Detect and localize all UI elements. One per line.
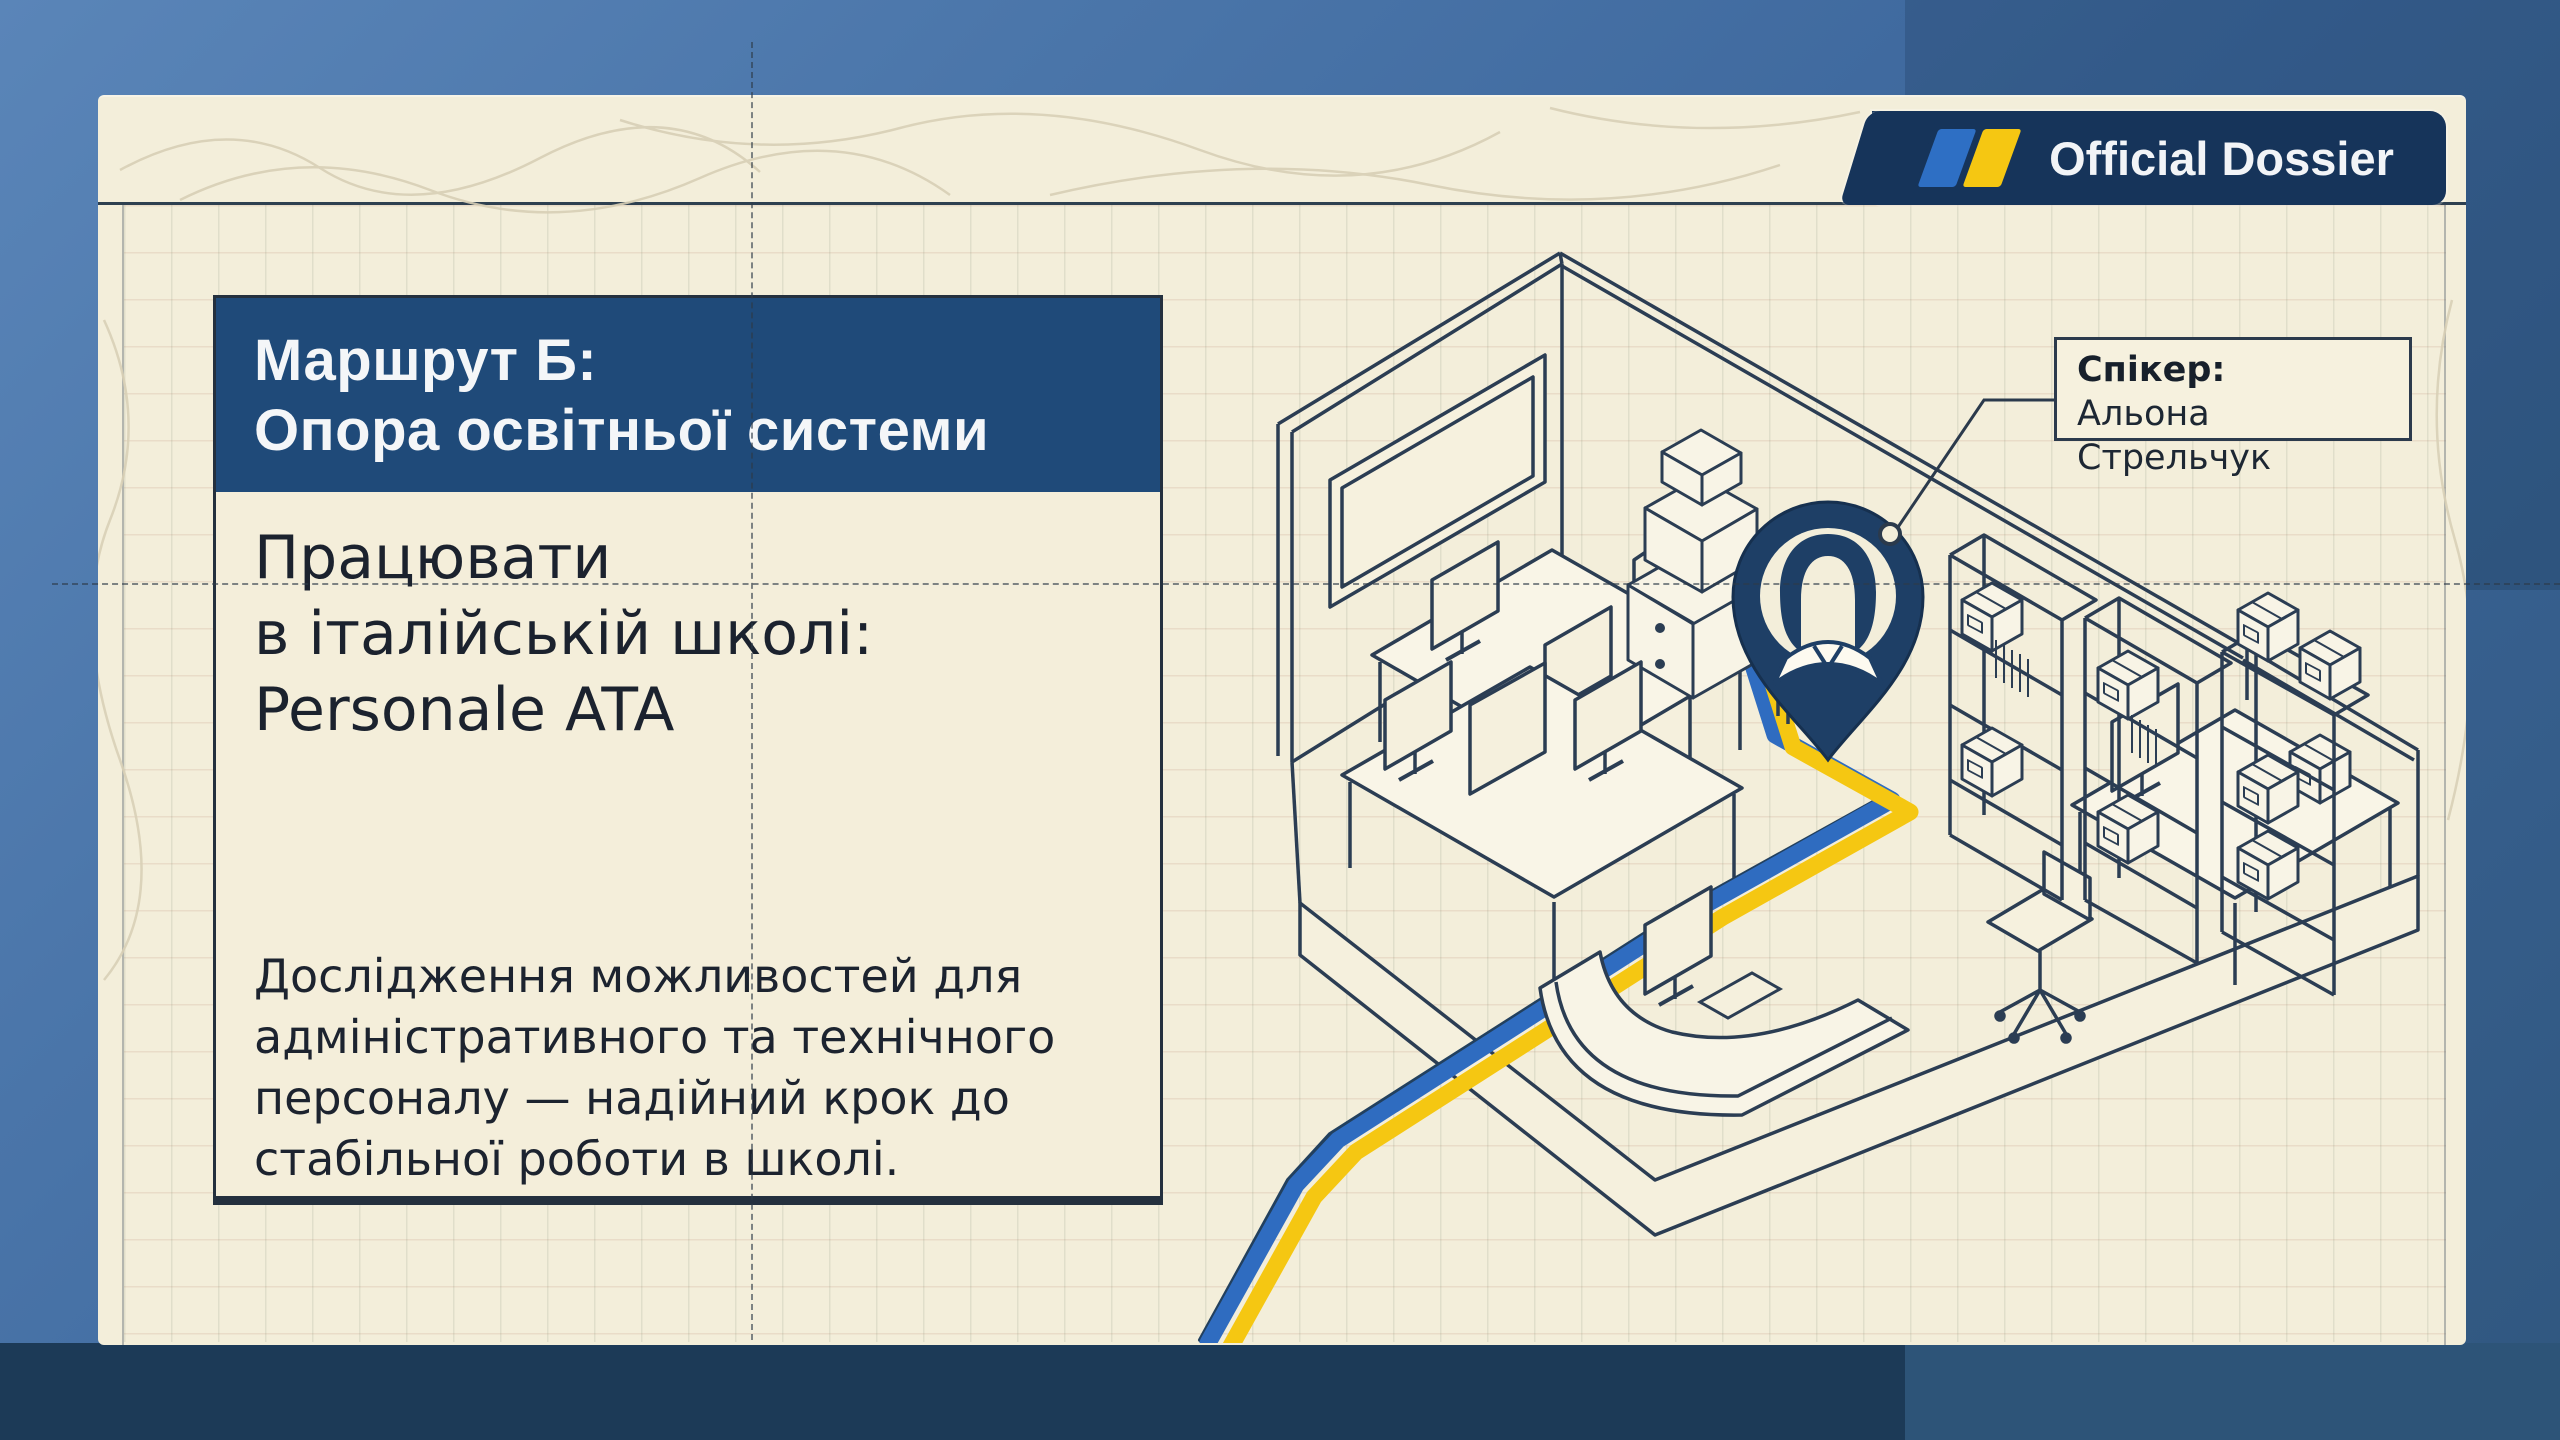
route-title: Маршрут Б: Опора освітньої системи — [216, 298, 1160, 492]
text-panel: Маршрут Б: Опора освітньої системи Працю… — [213, 295, 1163, 1205]
official-dossier-badge: Official Dossier — [1872, 111, 2446, 205]
page-frame-right — [2444, 204, 2446, 1345]
footer-band-light — [1905, 1343, 2560, 1440]
ukraine-flag-stripes-icon — [1928, 129, 2011, 187]
dossier-page: Маршрут Б: Опора освітньої системи Працю… — [98, 95, 2466, 1345]
page-frame-left — [122, 204, 124, 1345]
speaker-name: Альона Стрельчук — [2077, 392, 2409, 480]
speaker-callout: Спікер: Альона Стрельчук — [2054, 337, 2412, 441]
footer-band-dark — [0, 1343, 1905, 1440]
route-subtitle: Працювати в італійській школі: Personale… — [254, 520, 873, 748]
crosshair-horizontal-dashed — [52, 583, 2560, 585]
route-description: Дослідження можливостей для адміністрати… — [254, 946, 1055, 1190]
badge-label: Official Dossier — [2011, 131, 2446, 186]
speaker-label: Спікер: — [2077, 348, 2409, 392]
route-title-line2: Опора освітньої системи — [254, 396, 1160, 466]
dossier-slide-background: Маршрут Б: Опора освітньої системи Працю… — [0, 0, 2560, 1440]
crosshair-vertical-dashed — [751, 42, 753, 1340]
route-title-line1: Маршрут Б: — [254, 326, 1160, 396]
